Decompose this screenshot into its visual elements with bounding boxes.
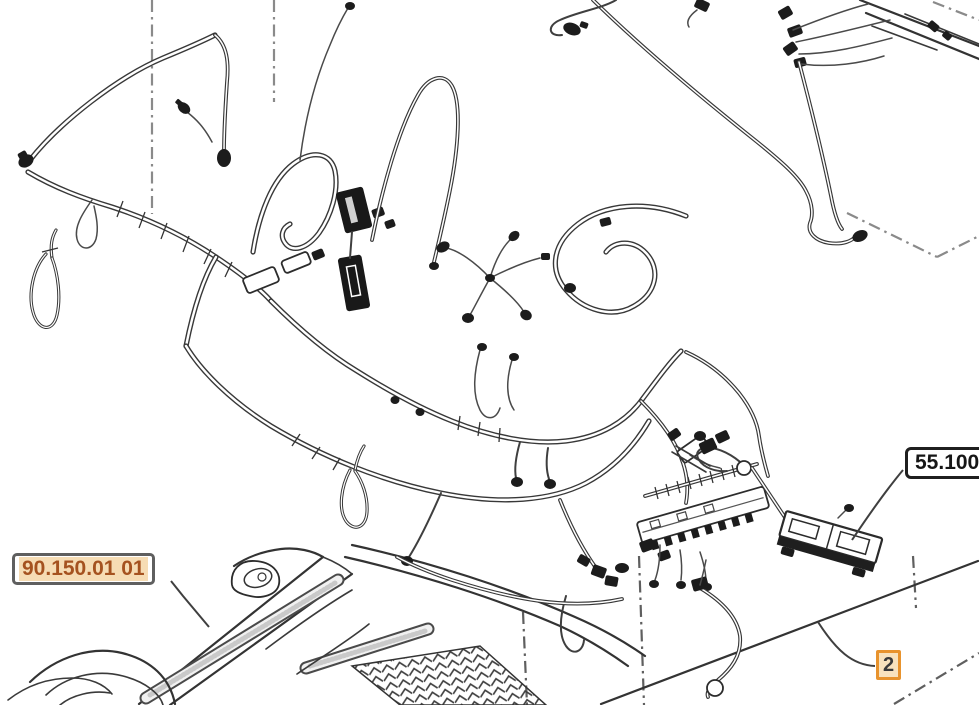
- frame-beam: [860, 0, 979, 59]
- harness-illustration: [0, 0, 979, 705]
- section-ref-hood-label: 90.150.01 01: [19, 557, 148, 581]
- connector-block: [774, 511, 882, 580]
- trunk-ticks: [292, 416, 500, 470]
- item-callout-2[interactable]: 2: [876, 650, 901, 680]
- section-ref-hood[interactable]: 90.150.01 01: [12, 553, 155, 585]
- section-ref-harness[interactable]: 55.100: [905, 447, 979, 479]
- coil-ticks: [655, 462, 746, 499]
- parts-diagram-canvas: 90.150.01 01 55.100 2: [0, 0, 979, 705]
- grille-mesh: [352, 646, 546, 705]
- main-harness: [16, 0, 892, 697]
- section-ref-harness-label: 55.100: [912, 451, 979, 475]
- item-callout-2-label: 2: [883, 654, 894, 676]
